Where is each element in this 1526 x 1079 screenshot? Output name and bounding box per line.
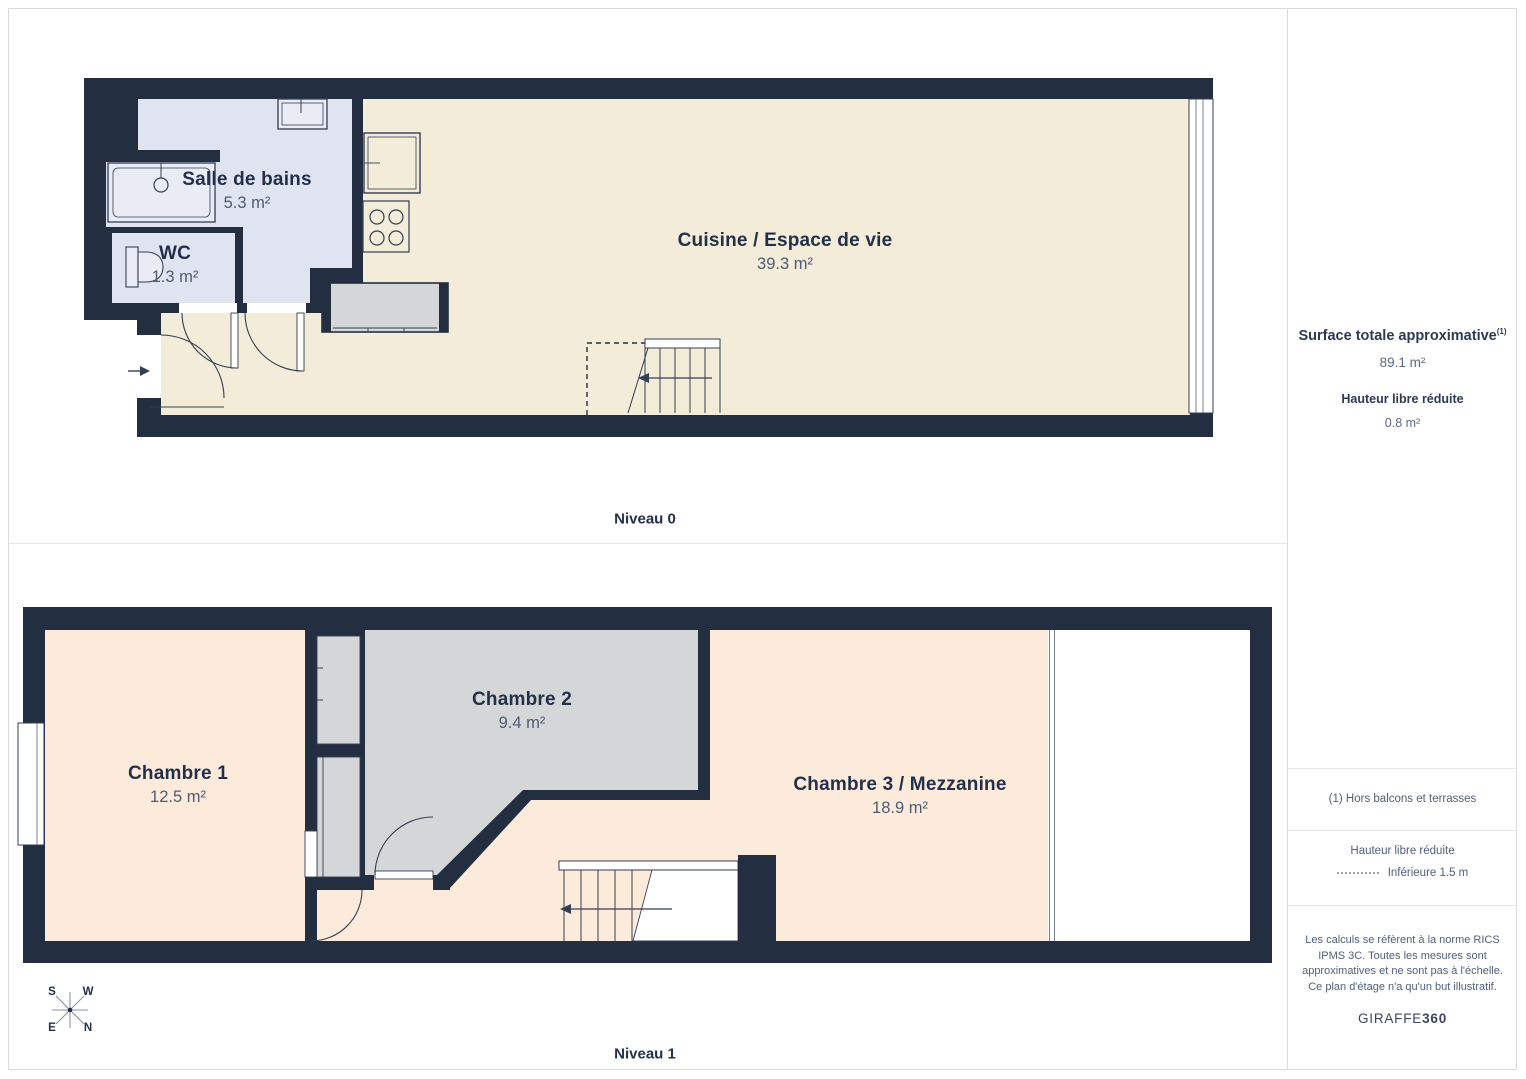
room-label-chambre2: Chambre 2 9.4 m² — [472, 689, 572, 733]
kitchen-counter-icon — [364, 133, 420, 193]
compass-label-s: S — [48, 986, 56, 998]
sidebar-divider-3 — [1288, 905, 1517, 906]
dashed-line-icon — [1337, 872, 1379, 874]
window-icon — [1189, 99, 1213, 413]
room-name: Chambre 2 — [472, 689, 572, 711]
legend-row: Inférieure 1.5 m — [1288, 867, 1517, 879]
room-label-cuisine: Cuisine / Espace de vie 39.3 m² — [678, 230, 893, 274]
room-area: 9.4 m² — [472, 714, 572, 733]
disclaimer-block: Les calculs se réfèrent à la norme RICS … — [1288, 905, 1517, 1026]
sidebar-divider-1 — [1288, 768, 1517, 769]
room-name: Chambre 3 / Mezzanine — [793, 774, 1006, 796]
window-icon — [18, 723, 44, 845]
disclaimer-text: Les calculs se réfèrent à la norme RICS … — [1301, 933, 1504, 995]
void-area — [1048, 630, 1250, 941]
room-name: WC — [152, 243, 199, 265]
room-label-chambre3: Chambre 3 / Mezzanine 18.9 m² — [793, 774, 1006, 818]
room-area: 39.3 m² — [678, 255, 893, 274]
room-name: Salle de bains — [182, 169, 312, 191]
room-name: Cuisine / Espace de vie — [678, 230, 893, 252]
stove-icon — [363, 201, 409, 252]
reduced-height-value: 0.8 m² — [1288, 416, 1517, 430]
level-label-niveau-0: Niveau 0 — [614, 511, 676, 528]
level-divider — [9, 543, 1287, 544]
reduced-height-legend: Hauteur libre réduite Inférieure 1.5 m — [1288, 830, 1517, 905]
giraffe360-logo: GIRAFFE360 — [1301, 1011, 1504, 1026]
compass-label-n: N — [84, 1022, 92, 1034]
sidebar-divider-2 — [1288, 830, 1517, 831]
niveau0-plan — [84, 78, 1213, 437]
room-area: 1.3 m² — [152, 268, 199, 287]
level-label-niveau-1: Niveau 1 — [614, 1046, 676, 1063]
legend-title: Hauteur libre réduite — [1288, 845, 1517, 857]
island-icon — [322, 283, 448, 332]
entry-arrow-icon — [128, 366, 150, 376]
room-area: 12.5 m² — [128, 788, 228, 807]
brand-suffix: 360 — [1422, 1011, 1447, 1026]
info-sidebar: Surface totale approximative(1) 89.1 m² … — [1288, 9, 1517, 1070]
reduced-height-title: Hauteur libre réduite — [1288, 392, 1517, 406]
room-label-salle-de-bains: Salle de bains 5.3 m² — [182, 169, 312, 213]
balcony-footnote: (1) Hors balcons et terrasses — [1288, 768, 1517, 830]
compass-label-w: W — [83, 986, 94, 998]
surface-total-title-text: Surface totale approximative — [1298, 328, 1496, 344]
sink-icon — [278, 99, 327, 129]
surface-total-value: 89.1 m² — [1288, 355, 1517, 370]
legend-value: Inférieure 1.5 m — [1388, 867, 1469, 879]
room-label-chambre1: Chambre 1 12.5 m² — [128, 763, 228, 807]
brand-name: GIRAFFE — [1358, 1011, 1422, 1026]
room-name: Chambre 1 — [128, 763, 228, 785]
surface-total-title: Surface totale approximative(1) — [1288, 327, 1517, 344]
room-area: 18.9 m² — [793, 799, 1006, 818]
footnote-marker: (1) — [1497, 327, 1507, 336]
room-label-wc: WC 1.3 m² — [152, 243, 199, 287]
room-area: 5.3 m² — [182, 194, 312, 213]
surface-summary: Surface totale approximative(1) 89.1 m² … — [1288, 327, 1517, 430]
compass-label-e: E — [48, 1022, 56, 1034]
